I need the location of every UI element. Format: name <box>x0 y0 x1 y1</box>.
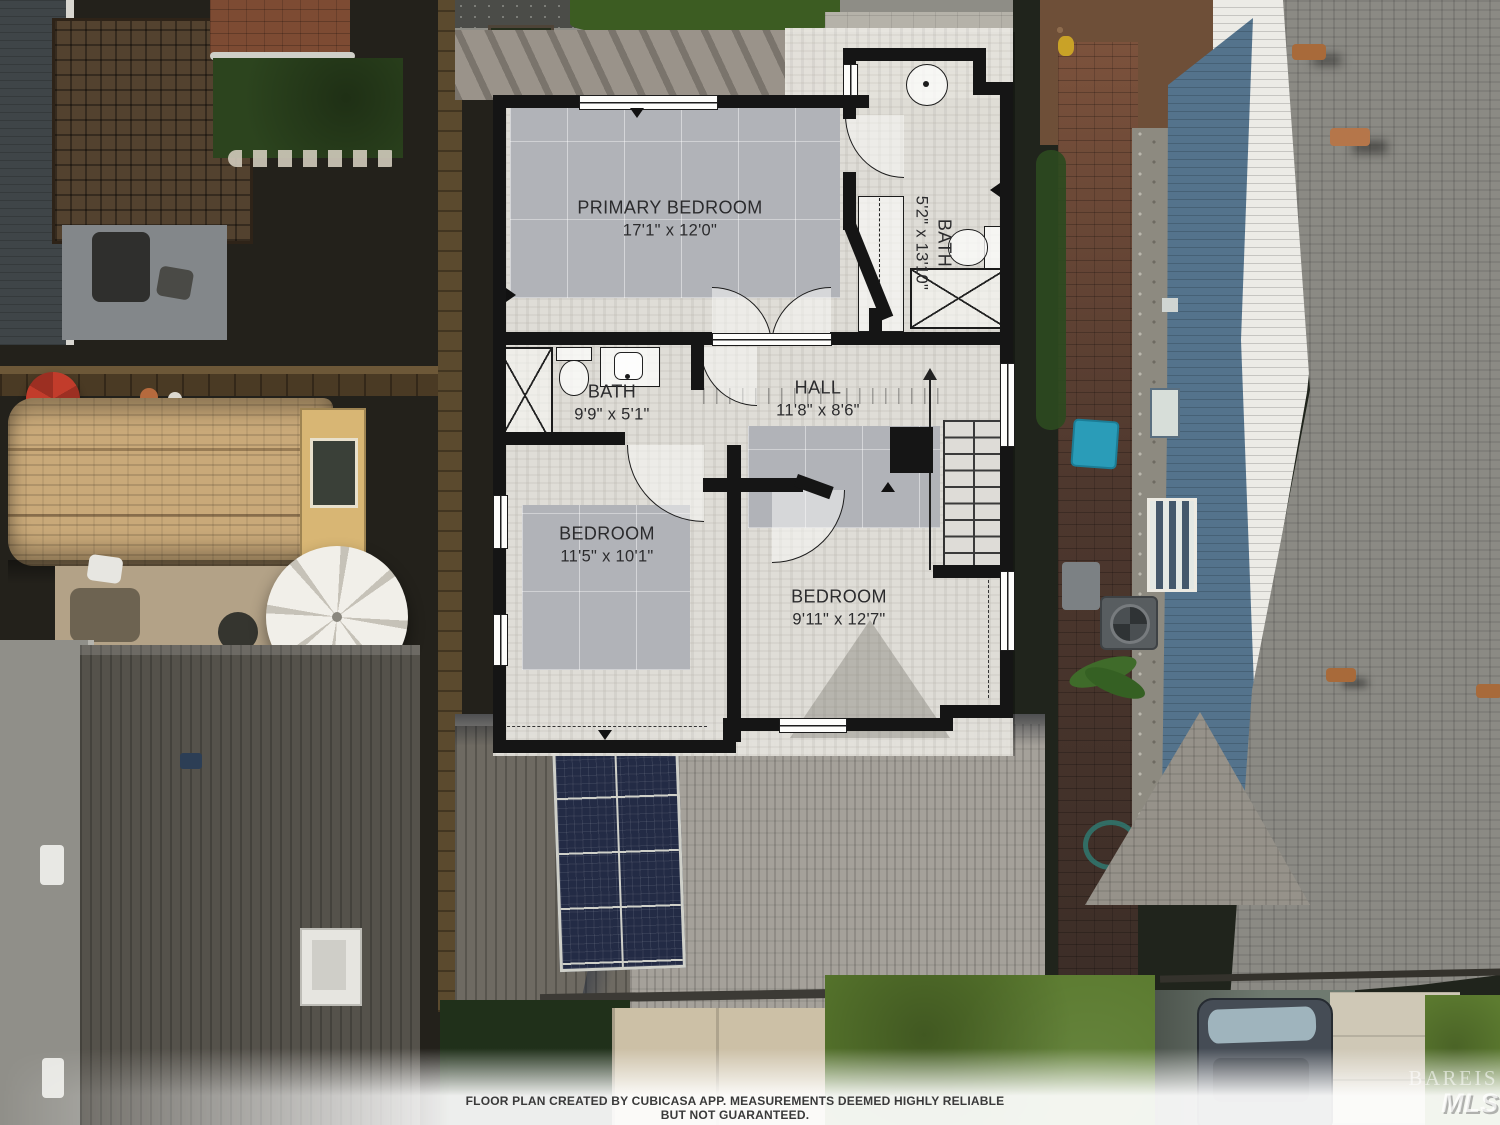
room-dimensions: 17'1" x 12'0" <box>577 219 762 241</box>
wall-marker <box>630 108 644 118</box>
room-dimensions: 11'5" x 10'1" <box>559 545 655 567</box>
wall-h1-right <box>830 332 1013 345</box>
wall-corridor-c <box>869 308 882 334</box>
wall-marker <box>881 482 895 492</box>
stairs-arrow-head <box>923 368 937 380</box>
wall-marker <box>506 288 516 302</box>
room-dimensions: 9'9" x 5'1" <box>574 403 649 425</box>
wall-bottom-step2 <box>940 705 953 731</box>
room-dimensions: 9'11" x 12'7" <box>791 608 887 630</box>
sink-drain-dot <box>923 81 929 87</box>
floor-plan: PRIMARY BEDROOM 17'1" x 12'0" BATH 5'2" … <box>0 0 1500 1125</box>
window <box>843 64 858 96</box>
room-label-bedroom-right: BEDROOM 9'11" x 12'7" <box>791 586 887 631</box>
room-name: BATH <box>574 381 649 404</box>
wall-marker <box>598 730 612 740</box>
stairs-guide-line <box>929 380 931 570</box>
window <box>1000 363 1015 447</box>
door-threshold <box>712 333 832 346</box>
wall-bath-bedroom <box>493 432 625 445</box>
room-dimensions: 11'8" x 8'6" <box>776 399 860 421</box>
watermark-sub: MLS <box>1398 1090 1498 1117</box>
wall-bump-top <box>843 48 986 61</box>
disclaimer-text: FLOOR PLAN CREATED BY CUBICASA APP. MEAS… <box>455 1094 1015 1122</box>
wall-marker <box>990 183 1000 197</box>
stairs <box>943 420 1002 568</box>
window <box>493 614 508 666</box>
room-name: PRIMARY BEDROOM <box>577 197 762 220</box>
room-label-bedroom-left: BEDROOM 11'5" x 10'1" <box>559 523 655 568</box>
room-label-hall-bath: BATH 9'9" x 5'1" <box>574 381 649 426</box>
window <box>493 495 508 549</box>
mls-watermark: BAREIS MLS <box>1398 1068 1498 1117</box>
wall-bedroom-divider <box>727 445 741 742</box>
wall-h1-left <box>493 332 712 345</box>
attic-dash-line <box>988 580 989 698</box>
faucet-dot <box>625 374 630 379</box>
room-label-hall: HALL 11'8" x 8'6" <box>776 377 860 422</box>
window <box>779 718 847 733</box>
landing-post-block <box>890 427 933 473</box>
toilet-tank <box>556 347 592 361</box>
watermark-name: BAREIS <box>1398 1068 1498 1089</box>
room-label-primary-bath: BATH 5'2" x 13'10" <box>911 196 956 290</box>
room-name: BEDROOM <box>791 586 887 609</box>
wall-bottom-left <box>493 740 736 753</box>
room-name: BEDROOM <box>559 523 655 546</box>
attic-dash-line <box>502 726 707 727</box>
window <box>579 95 718 110</box>
wall-bath-hall <box>691 345 704 390</box>
room-label-primary-bedroom: PRIMARY BEDROOM 17'1" x 12'0" <box>577 197 762 242</box>
aerial-photo-stage: PRIMARY BEDROOM 17'1" x 12'0" BATH 5'2" … <box>0 0 1500 1125</box>
room-name: HALL <box>776 377 860 400</box>
wall-h3 <box>703 478 803 492</box>
room-dimensions: 5'2" x 13'10" <box>911 196 933 290</box>
room-name: BATH <box>933 196 956 290</box>
window <box>1000 571 1015 651</box>
wall-corridor-a <box>843 105 856 119</box>
